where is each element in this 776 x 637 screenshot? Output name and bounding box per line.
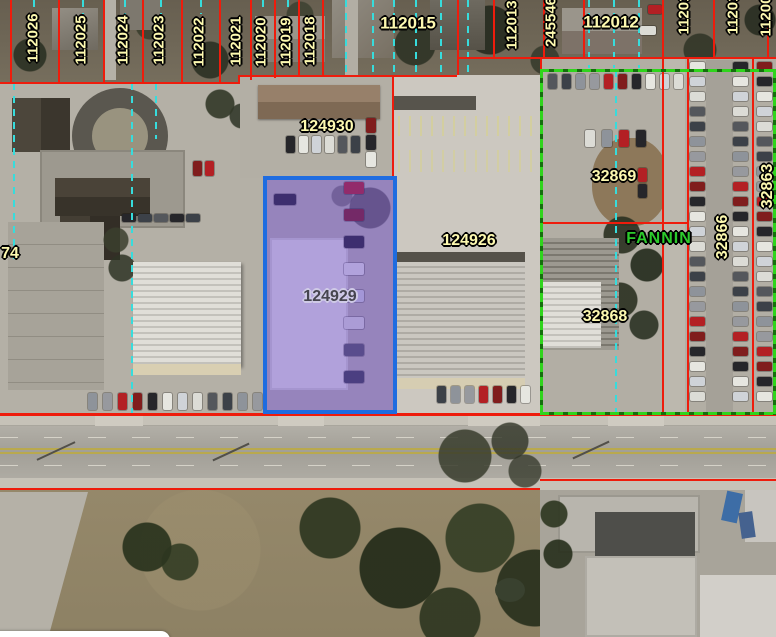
parcel-label-112012: 112012 bbox=[583, 14, 639, 31]
aerial-map[interactable]: 1120261120251120241120231120221120211120… bbox=[0, 0, 776, 637]
parcel-label-124930: 124930 bbox=[300, 119, 353, 135]
parcel-label-32868: 32868 bbox=[583, 309, 628, 325]
parcel-label-124929: 124929 bbox=[303, 289, 356, 305]
parcel-label-112026: 112026 bbox=[26, 13, 41, 62]
parcel-label-112015: 112015 bbox=[380, 15, 436, 32]
parcel-label-11201: 11201 bbox=[677, 0, 692, 34]
parcel-label-32866: 32866 bbox=[715, 215, 731, 260]
street-label-FANNIN: FANNIN bbox=[626, 231, 692, 247]
popup-stub[interactable] bbox=[0, 631, 170, 637]
parcel-label-112018: 112018 bbox=[303, 16, 318, 65]
parcel-label-112025: 112025 bbox=[74, 15, 89, 64]
parcel-label-112024: 112024 bbox=[116, 15, 131, 64]
labels-layer: 1120261120251120241120231120221120211120… bbox=[0, 0, 776, 637]
parcel-label-112013: 112013 bbox=[505, 0, 520, 49]
parcel-label-112021: 112021 bbox=[229, 16, 244, 65]
parcel-label-112020: 112020 bbox=[254, 17, 269, 66]
parcel-label-74: 74 bbox=[1, 246, 19, 262]
parcel-label-124926: 124926 bbox=[442, 233, 495, 249]
parcel-label-11201: 11201 bbox=[726, 0, 741, 34]
parcel-label-112022: 112022 bbox=[192, 17, 207, 66]
parcel-label-245546: 245546 bbox=[544, 0, 559, 47]
parcel-label-112023: 112023 bbox=[152, 15, 167, 64]
parcel-label-32869: 32869 bbox=[592, 169, 637, 185]
parcel-label-112019: 112019 bbox=[279, 17, 294, 66]
parcel-label-32863: 32863 bbox=[760, 164, 776, 209]
parcel-label-11200: 11200 bbox=[759, 0, 774, 36]
